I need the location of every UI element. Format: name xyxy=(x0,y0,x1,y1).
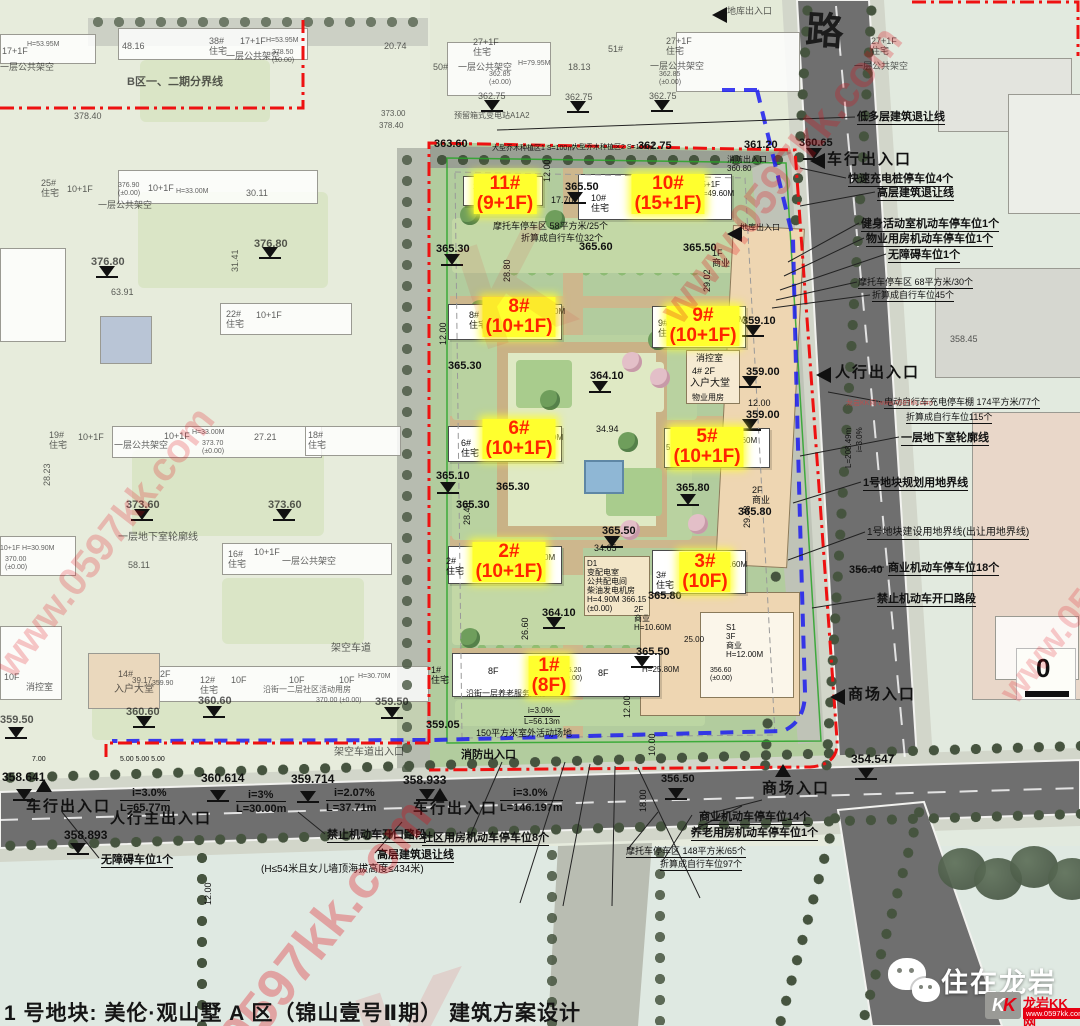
building-number-label-8: 8# (10+1F) xyxy=(482,297,555,337)
plan-label: 373.00 xyxy=(381,110,405,119)
plan-label: 378.40 xyxy=(379,122,403,131)
plan-label: 359.50 xyxy=(0,714,34,726)
plan-label: 365.30 xyxy=(496,481,530,493)
plan-label: H=53.95M xyxy=(27,41,60,49)
plan-label: 34.65 xyxy=(594,543,617,553)
plan-label: 48.16 xyxy=(122,41,145,51)
plan-label: 362.85 (±0.00) xyxy=(489,71,511,87)
plan-label: 10+1F xyxy=(254,547,280,557)
plan-label: 38# 住宅 xyxy=(209,36,227,56)
plan-label: 1# 住宅 xyxy=(431,665,449,685)
plan-label: 一层公共架空 xyxy=(854,61,908,71)
main-pedestrian-exit: 人行主出入口 xyxy=(110,811,212,828)
plan-label: 376.80 xyxy=(254,238,288,250)
plan-label: 30.11 xyxy=(246,188,268,198)
plan-label: 34.94 xyxy=(596,424,619,434)
mall-entrance-south: 商场入口 xyxy=(762,781,830,798)
plan-label: 365.50 xyxy=(636,646,670,658)
plan-label: L=208.49m xyxy=(845,428,854,468)
plan-label: 8F xyxy=(598,668,609,678)
plan-label: 22# 住宅 xyxy=(226,309,244,329)
plan-label: 365.30 xyxy=(448,360,482,372)
plan-label: 26.60 xyxy=(520,617,530,640)
plan-label: 12.00 xyxy=(438,322,448,345)
plan-label: 预留箱式变电站A1A2 xyxy=(454,112,530,121)
elevation-marker-icon xyxy=(210,790,226,801)
plan-label: i=3.0% xyxy=(856,427,865,452)
plan-label: 折算成自行车位45个 xyxy=(872,290,954,302)
plan-label: 入户大堂 xyxy=(690,378,730,389)
plan-label: 362.85 (±0.00) xyxy=(659,71,681,87)
plan-label: 376.90 (±0.00) xyxy=(118,182,140,198)
plan-label: 358.933 xyxy=(403,774,446,787)
plan-label: 3# 住宅 xyxy=(656,570,674,590)
plan-label: 358.641 xyxy=(2,771,45,784)
plan-label: 50# xyxy=(433,62,448,72)
plan-label: 摩托车停车区 58平方米/25个 xyxy=(493,221,608,231)
plan-label: L=146.197m xyxy=(500,800,563,814)
plan-label: i=3.0% xyxy=(132,787,167,799)
plan-label: H=79.95M xyxy=(518,60,551,68)
mall-entrance-east: 商场入口 xyxy=(848,687,916,704)
building-number-label-5: 5# (10+1F) xyxy=(670,427,743,467)
wechat-eye xyxy=(897,968,902,973)
vehicle-exit-sw: 车行出入口 xyxy=(26,799,111,816)
building-number-label-10: 10# (15+1F) xyxy=(631,174,704,214)
plan-label: L=30.00m xyxy=(236,801,286,815)
plan-label: 29.02 xyxy=(702,269,712,292)
plan-label: 27+1F 住宅 xyxy=(871,36,897,56)
kk-site-url: www.0597kk.com xyxy=(1023,1008,1080,1019)
plan-label: 一层地下室轮廓线 xyxy=(118,532,198,543)
building-number-label-9: 9# (10+1F) xyxy=(666,306,739,346)
kk-letter: K xyxy=(992,995,1003,1015)
plan-label: 362.75 xyxy=(565,92,593,102)
plan-label: 18.00 xyxy=(638,789,648,812)
plan-label: 356.50 xyxy=(661,773,695,785)
plan-label: 10+1F xyxy=(67,184,93,194)
plan-label: 362.75 xyxy=(649,91,677,101)
plan-label: 10+1F xyxy=(78,432,104,442)
plan-label: 10+1F xyxy=(148,183,174,193)
plan-label: 6# 住宅 xyxy=(461,438,479,458)
plan-label: 折算成自行车位97个 xyxy=(660,859,742,871)
plan-label: 373.70 (±0.00) xyxy=(202,440,224,456)
road-name-label: 路 xyxy=(804,0,846,56)
plan-label: 373.60 xyxy=(268,499,302,511)
plan-label: 摩托车停车区 148平方米/65个 xyxy=(626,846,746,858)
plan-label: 364.10 xyxy=(542,607,576,619)
plan-label: 51# xyxy=(608,44,623,54)
kk-letter: K xyxy=(1003,995,1014,1015)
building-number-label-1: 1# (8F) xyxy=(529,656,570,696)
plan-label: 359.714 xyxy=(291,773,334,786)
plan-label: H=33.00M xyxy=(176,188,209,196)
plan-label: 沿街一二层社区活动用房 xyxy=(263,686,351,695)
plan-label: 2F 商业 H=10.60M xyxy=(634,606,671,633)
plan-label: 养老用房机动车停车位1个 xyxy=(691,827,818,841)
plan-label: 364.10 xyxy=(590,370,624,382)
plan-label: 快速充电桩停车位4个 xyxy=(848,173,953,187)
plan-label: 12.00 xyxy=(622,695,632,718)
plan-label: 10F xyxy=(231,675,247,685)
vehicle-exit-east: 车行出入口 xyxy=(827,152,912,169)
plan-label: 358.893 xyxy=(64,829,107,842)
plan-label: 社区用房机动车停车位8个 xyxy=(422,832,549,846)
plan-label: i=3.0% xyxy=(528,707,553,716)
wechat-bubble-small xyxy=(912,978,940,1002)
plan-label: 1号地块规划用地界线 xyxy=(863,477,968,491)
plan-label: i=3.0% xyxy=(513,787,548,799)
plan-label: 12# 住宅 xyxy=(200,675,218,695)
plan-label: 28.23 xyxy=(42,463,52,486)
plan-label: 10+1F H=30.90M xyxy=(0,545,54,553)
wechat-eye xyxy=(928,985,932,989)
small-watermark: 龙岩KK网 www.0597kk.com xyxy=(846,400,933,408)
plan-label: 2# 住宅 xyxy=(446,556,464,576)
plan-label: S1 3F 商业 H=12.00M xyxy=(726,624,763,660)
plan-label: 禁止机动车开口路段 xyxy=(877,593,976,607)
building-number-label-2: 2# (10+1F) xyxy=(472,542,545,582)
plan-label: 架空车道出入口 xyxy=(334,747,404,758)
wechat-eye xyxy=(909,968,914,973)
plan-label: H=53.95M xyxy=(266,37,299,45)
plan-label: 禁止机动车开口路段 xyxy=(327,829,426,843)
plan-label: 17+1F xyxy=(240,36,266,46)
plan-label: 消防出入口 360.80 xyxy=(727,156,767,174)
elevation-marker-icon xyxy=(440,482,456,493)
plan-label: 10# 住宅 xyxy=(591,193,609,213)
entrance-arrow-left-icon xyxy=(830,689,845,705)
plan-label: 356.60 (±0.00) xyxy=(710,667,732,683)
fire-exit-south: 消防出入口 xyxy=(461,749,516,761)
plan-label: 12.00 xyxy=(542,159,552,182)
plan-label: 一层公共架空 xyxy=(114,440,168,450)
plan-label: 29.48 xyxy=(742,505,752,528)
plan-label: 27+1F 住宅 xyxy=(473,37,499,57)
plan-label: 365.10 xyxy=(436,470,470,482)
plan-label: 物业用房机动车停车位1个 xyxy=(866,233,993,247)
plan-label: 370.00 (±0.00) xyxy=(5,556,27,572)
plan-label: 无障碍车位1个 xyxy=(888,249,960,263)
plan-label: 2F 商业 xyxy=(752,485,770,505)
plan-label: 1号地块建设用地界线(出让用地界线) xyxy=(867,527,1029,540)
plan-label: 2F xyxy=(160,669,171,679)
page-title: 1 号地块: 美伦·观山墅 A 区（锦山壹号Ⅱ期） 建筑方案设计 xyxy=(4,997,581,1026)
plan-label: 58.11 xyxy=(128,560,150,570)
plan-label: 27+1F 住宅 xyxy=(666,36,692,56)
plan-label: 14# xyxy=(118,669,133,679)
plan-label: 10+1F xyxy=(164,431,190,441)
plan-label: 18# 住宅 xyxy=(308,430,326,450)
plan-label: 摩托车停车区 68平方米/30个 xyxy=(858,277,973,289)
plan-label: 365.50 xyxy=(565,181,599,193)
plan-label: 360.60 xyxy=(126,706,160,718)
plan-label: 28.40 xyxy=(462,502,472,525)
plan-label: 360.65 xyxy=(799,137,833,149)
plan-label: 折算成自行车位115个 xyxy=(906,412,992,424)
plan-label: 359.90 xyxy=(152,680,173,688)
plan-label: 商业机动车停车位14个 xyxy=(699,811,810,825)
elevation-marker-icon xyxy=(570,101,586,112)
plan-label: 359.10 xyxy=(742,315,776,327)
plan-label: 19# 住宅 xyxy=(49,430,67,450)
plan-label: 370.00 (±0.00) xyxy=(316,697,361,705)
plan-label: 无障碍车位1个 xyxy=(101,854,173,868)
plan-label: 365.80 xyxy=(648,590,682,602)
plan-label: 359.05 xyxy=(426,719,460,731)
plan-label: 25# 住宅 xyxy=(41,178,59,198)
plan-label: 商业机动车停车位18个 xyxy=(888,562,999,576)
lines-layer xyxy=(0,0,1080,1026)
plan-label: 消控室 xyxy=(26,682,53,692)
elevation-marker-icon xyxy=(70,843,86,854)
plan-label: 359.00 xyxy=(746,366,780,378)
plan-label: 一层公共架空 xyxy=(0,62,54,72)
plan-label: 12.00 xyxy=(748,398,771,408)
plan-label: 16# 住宅 xyxy=(228,549,246,569)
kk-logo-icon: KK xyxy=(985,992,1021,1019)
plan-label: 31.41 xyxy=(230,249,240,272)
site-plan-canvas: 路 1 号地块: 美伦·观山墅 A 区（锦山壹号Ⅱ期） 建筑方案设计 www.0… xyxy=(0,0,1080,1026)
plan-label: 一层公共架空 xyxy=(650,61,704,71)
plan-label: 12.00 xyxy=(203,882,213,905)
building-sign-zero: 0 xyxy=(1036,654,1050,683)
plan-label: 354.547 xyxy=(851,753,894,766)
building-number-label-3: 3# (10F) xyxy=(679,552,730,592)
plan-label: L=37.71m xyxy=(326,800,376,814)
entrance-arrow-left-icon xyxy=(816,367,831,383)
plan-label: H=30.70M xyxy=(358,673,391,681)
elevation-marker-icon xyxy=(8,727,24,738)
plan-label: 362.75 xyxy=(638,140,672,152)
plan-label: 地库出入口 xyxy=(740,224,780,233)
elevation-marker-icon xyxy=(592,381,608,392)
plan-label: B区一、二期分界线 xyxy=(127,76,223,88)
plan-label: 低多层建筑退让线 xyxy=(857,111,945,125)
plan-label: 378.40 xyxy=(74,111,102,121)
plan-label: 消控室 xyxy=(696,353,723,363)
plan-label: 378.50 (±0.00) xyxy=(272,49,294,65)
plan-label: 物业用房 xyxy=(692,394,724,403)
plan-label: 362.75 xyxy=(478,91,506,101)
plan-label: 63.91 xyxy=(111,287,134,297)
elevation-marker-icon xyxy=(680,494,696,505)
plan-label: 17+1F xyxy=(2,46,28,56)
plan-label: 358.45 xyxy=(950,334,978,344)
vehicle-exit-south: 车行出入口 xyxy=(413,801,498,818)
plan-label: (H≤54米且女儿墙顶海拔高度≤434米) xyxy=(261,864,424,875)
elevation-marker-icon xyxy=(858,768,874,779)
elevation-marker-icon xyxy=(206,706,222,717)
plan-label: 大型乔木种植区1 S=100㎡ xyxy=(492,145,574,153)
elevation-marker-icon xyxy=(384,707,400,718)
plan-label: 28.80 xyxy=(502,259,512,282)
plan-label: 360.614 xyxy=(201,772,244,785)
plan-label: 17.70 xyxy=(551,195,574,205)
pedestrian-exit-east: 人行出入口 xyxy=(835,365,920,382)
plan-label: 4# 2F xyxy=(692,366,715,376)
plan-label: 18.13 xyxy=(568,62,591,72)
plan-label: 150平方米室外活动场地 xyxy=(476,728,572,738)
plan-label: 376.80 xyxy=(91,256,125,268)
plan-label: 高层建筑退让线 xyxy=(377,849,454,863)
plan-label: 架空车道 xyxy=(331,643,371,654)
entrance-arrow-up-icon xyxy=(775,764,791,777)
elevation-marker-icon xyxy=(668,788,684,799)
plan-label: 10F xyxy=(4,672,20,682)
elevation-marker-icon xyxy=(300,791,316,802)
plan-label: 361.20 xyxy=(744,139,778,151)
entrance-arrow-left-icon xyxy=(810,153,825,169)
plan-label: 373.60 xyxy=(126,499,160,511)
elevation-marker-icon xyxy=(444,254,460,265)
plan-label: 10F xyxy=(339,675,355,685)
wechat-eye xyxy=(919,985,923,989)
plan-label: L=56.13m xyxy=(524,716,560,727)
plan-label: i=2.07% xyxy=(334,787,375,799)
plan-label: H=33.00M xyxy=(192,429,225,437)
plan-label: 地库出入口 xyxy=(727,6,772,16)
plan-label: 一层地下室轮廓线 xyxy=(901,432,989,446)
entrance-arrow-left-icon xyxy=(712,7,727,23)
plan-label: 27.21 xyxy=(254,432,277,442)
plan-label: 365.60 xyxy=(579,241,613,253)
plan-label: 365.50 xyxy=(602,525,636,537)
plan-label: 25.00 xyxy=(684,636,704,645)
plan-label: i=3% xyxy=(248,789,273,801)
plan-label: 10.00 xyxy=(647,733,657,756)
building-number-label-11: 11# (9+1F) xyxy=(474,174,537,214)
building-number-label-6: 6# (10+1F) xyxy=(482,419,555,459)
elevation-marker-icon xyxy=(484,100,500,111)
plan-label: H=25.80M xyxy=(642,666,679,675)
plan-label: 8F xyxy=(488,666,499,676)
plan-label: 363.60 xyxy=(434,138,468,150)
plan-label: 365.30 xyxy=(436,243,470,255)
plan-label: 一层公共架空 xyxy=(282,556,336,566)
plan-label: 高层建筑退让线 xyxy=(877,187,954,201)
plan-label: 10F xyxy=(289,675,305,685)
plan-label: 356.40 xyxy=(849,564,883,576)
plan-label: 359.50 xyxy=(375,696,409,708)
plan-label: 39.17 xyxy=(132,677,152,686)
elevation-marker-icon xyxy=(654,100,670,111)
plan-label: 359.00 xyxy=(746,409,780,421)
plan-label: 7.00 xyxy=(32,756,46,764)
plan-label: 360.60 xyxy=(198,695,232,707)
plan-label: 健身活动室机动车停车位1个 xyxy=(861,218,999,232)
plan-label: 10+1F xyxy=(256,310,282,320)
plan-label: 一层公共架空 xyxy=(98,200,152,210)
plan-label: 5.00 5.00 5.00 xyxy=(120,756,165,764)
plan-label: 365.80 xyxy=(676,482,710,494)
plan-label: 20.74 xyxy=(384,41,407,51)
plan-label: 1F 商业 xyxy=(712,248,730,268)
